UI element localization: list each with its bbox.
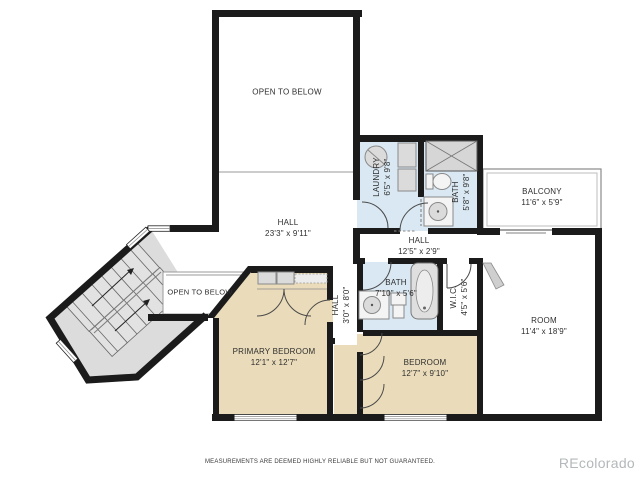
room-label-hall-main: HALL 23'3" x 9'11" <box>265 217 311 239</box>
room-label-primary-bedroom: PRIMARY BEDROOM 12'1" x 12'7" <box>233 346 316 368</box>
room-label-balcony: BALCONY 11'6" x 5'9" <box>521 186 562 208</box>
disclaimer-text: MEASUREMENTS ARE DEEMED HIGHLY RELIABLE … <box>205 459 435 465</box>
recolorado-watermark: REcolorado <box>559 455 635 471</box>
room-label-bath-upper: BATH 5'8" x 9'8" <box>450 173 472 210</box>
room-label-hall-vertical: HALL 3'0" x 8'0" <box>330 286 352 323</box>
room-label-wic: W.I.C. 4'5" x 5'6" <box>448 278 470 315</box>
room-label-room: ROOM 11'4" x 18'9" <box>521 315 567 337</box>
floorplan-canvas: OPEN TO BELOW HALL 23'3" x 9'11" LAUNDRY… <box>0 0 640 480</box>
floorplan-drawing <box>0 0 640 480</box>
room-label-open-to-below-top: OPEN TO BELOW <box>252 87 321 98</box>
room-label-laundry: LAUNDRY 6'5" x 9'8" <box>371 157 393 197</box>
room-label-hall-upper: HALL 12'5" x 2'9" <box>398 235 440 257</box>
room-angled-door <box>483 263 504 289</box>
room-label-bedroom: BEDROOM 12'7" x 9'10" <box>402 357 448 379</box>
room-label-open-to-below-stairs: OPEN TO BELOW <box>167 287 232 298</box>
room-label-bath-lower: BATH 7'10" x 5'6" <box>375 277 417 299</box>
